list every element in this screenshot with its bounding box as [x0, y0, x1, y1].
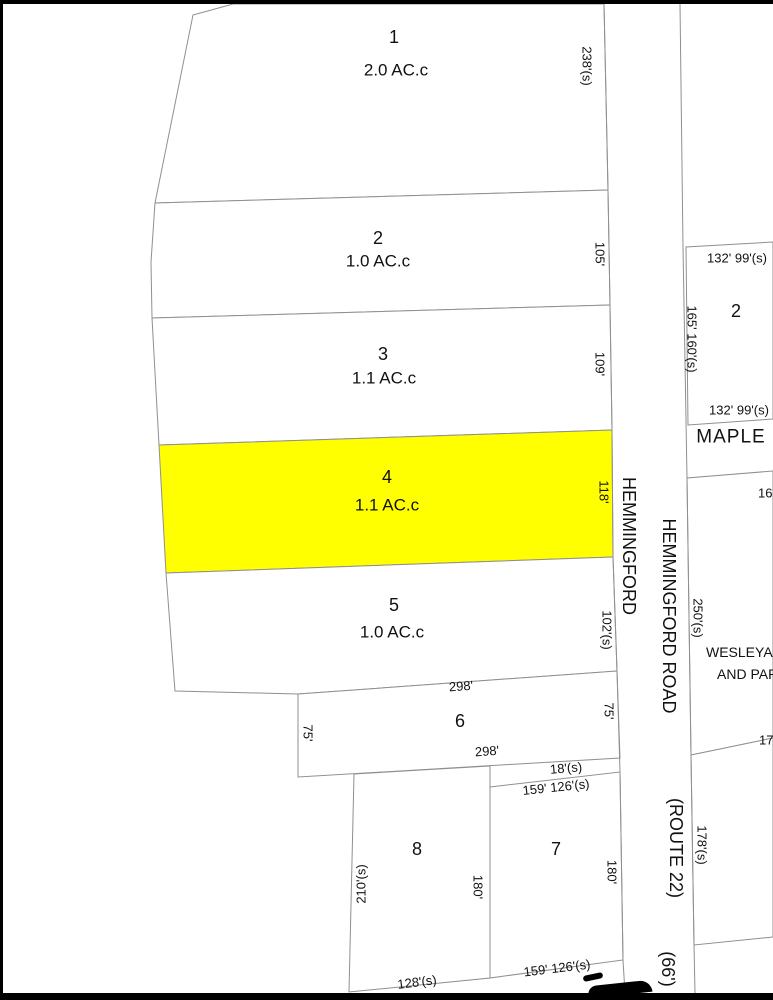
parcel-lot-8[interactable]	[349, 766, 490, 992]
parcel-lot-2[interactable]	[151, 190, 610, 318]
parcel-lot-1[interactable]	[155, 4, 608, 203]
frame-bottom	[0, 993, 773, 1000]
plat-map: 12.0 AC.c238'(s)21.0 AC.c105'31.1 AC.c10…	[0, 0, 773, 1000]
parcel-maple-lot-2[interactable]	[686, 242, 773, 425]
frame-left	[0, 0, 3, 1000]
parcel-lot-7[interactable]	[490, 772, 623, 978]
frame-top	[0, 0, 773, 4]
parcel-wesleyan[interactable]	[687, 471, 773, 755]
parcel-south-of-wesleyan[interactable]	[691, 738, 773, 945]
parcel-lot-4-highlighted[interactable]	[159, 430, 613, 573]
parcel-layer	[0, 0, 773, 1000]
parcel-lot-3[interactable]	[152, 305, 612, 445]
parcel-lot-5[interactable]	[166, 557, 617, 694]
